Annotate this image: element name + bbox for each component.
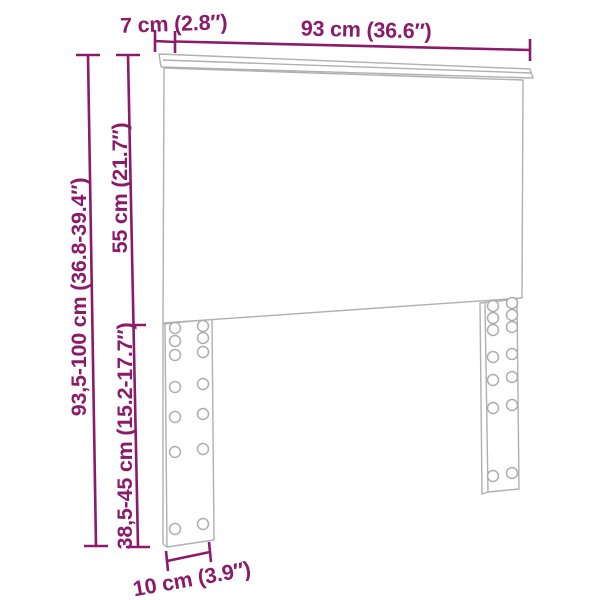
label-width: 93 cm (36.6″)	[300, 16, 431, 43]
bolt-hole	[198, 333, 209, 344]
bolt-hole	[170, 382, 181, 393]
bolt-hole	[488, 403, 499, 414]
bolt-hole	[198, 409, 209, 420]
bolt-hole	[198, 347, 209, 358]
bolt-hole	[488, 471, 499, 482]
label-leg-width: 10 cm (3.9″)	[131, 557, 252, 600]
bolt-hole	[507, 349, 518, 360]
dimension-leg-width: 10 cm (3.9″)	[131, 542, 252, 600]
label-leg-height: 38,5-45 cm (15.2-17.7″)	[113, 323, 137, 550]
label-cap-thickness: 7 cm (2.8″)	[120, 10, 228, 38]
bolt-hole	[198, 519, 209, 530]
bolt-hole	[488, 375, 499, 386]
bolt-hole	[198, 444, 209, 455]
bolt-hole	[170, 447, 181, 458]
bolt-hole	[507, 468, 518, 479]
bolt-hole	[488, 352, 499, 363]
bolt-hole	[507, 298, 518, 309]
dimension-width: 93 cm (36.6″)	[175, 16, 530, 61]
bolt-hole	[507, 400, 518, 411]
bolt-hole	[488, 325, 499, 336]
dimension-diagram-canvas: 7 cm (2.8″) 93 cm (36.6″) 93,5-100 cm (3…	[0, 0, 600, 600]
bolt-hole	[488, 301, 499, 312]
label-total-height: 93,5-100 cm (36.8-39.4″)	[67, 178, 91, 417]
bolt-hole	[507, 322, 518, 333]
dimension-cap-thickness: 7 cm (2.8″)	[120, 10, 228, 53]
bolt-hole	[170, 524, 181, 535]
dimension-total-height: 93,5-100 cm (36.8-39.4″)	[67, 55, 108, 546]
headboard-dimension-diagram: 7 cm (2.8″) 93 cm (36.6″) 93,5-100 cm (3…	[0, 0, 600, 600]
bolt-hole	[170, 412, 181, 423]
bolt-hole	[488, 313, 499, 324]
label-panel-height: 55 cm (21.7″)	[108, 123, 132, 254]
headboard-drawing	[159, 54, 533, 547]
bolt-hole	[170, 336, 181, 347]
bolt-hole	[507, 310, 518, 321]
bolt-hole	[170, 350, 181, 361]
headboard-panel	[163, 68, 523, 323]
bolt-hole	[170, 323, 181, 334]
bolt-hole	[198, 379, 209, 390]
bolt-hole	[507, 372, 518, 383]
bolt-hole	[198, 321, 209, 332]
dimension-panel-and-leg-height: 55 cm (21.7″) 38,5-45 cm (15.2-17.7″)	[108, 55, 150, 549]
